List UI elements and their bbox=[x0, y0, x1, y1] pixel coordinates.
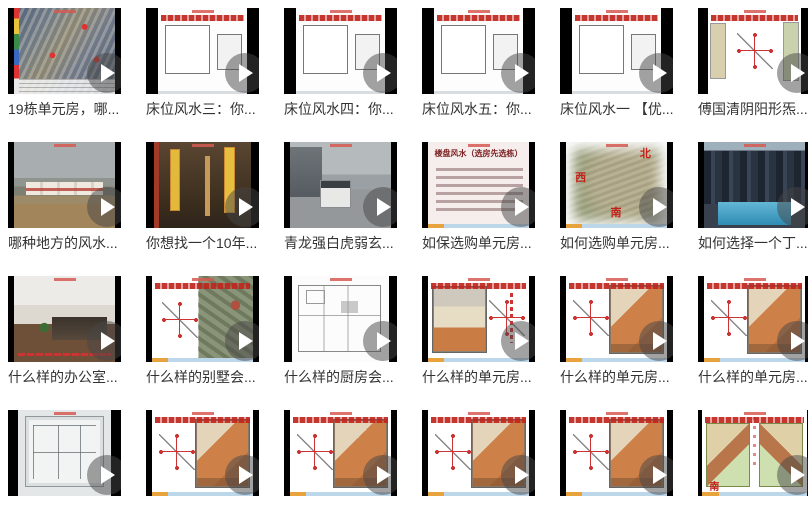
red-caption-strip bbox=[569, 283, 664, 289]
play-icon[interactable] bbox=[87, 187, 121, 227]
slide-headline: 楼盘风水（选房先选栋） bbox=[428, 148, 529, 159]
watermark-mark bbox=[192, 10, 214, 13]
watermark-mark bbox=[468, 144, 490, 147]
red-caption-strip bbox=[155, 283, 250, 289]
play-icon[interactable] bbox=[501, 455, 535, 495]
video-thumbnail[interactable] bbox=[284, 8, 397, 94]
video-thumbnail[interactable] bbox=[146, 142, 259, 228]
video-card[interactable]: 楼盘风水（选房先选栋） 如保选购单元房... bbox=[422, 142, 535, 252]
video-card[interactable]: 床位风水三：你... bbox=[146, 8, 259, 118]
watermark-mark bbox=[606, 144, 628, 147]
play-icon[interactable] bbox=[363, 321, 397, 361]
video-title[interactable]: 什么样的别墅会... bbox=[146, 368, 259, 386]
video-title[interactable]: 什么样的单元房... bbox=[698, 368, 808, 386]
video-card[interactable]: 床位风水五：你... bbox=[422, 8, 535, 118]
video-title[interactable]: 如何选择一个丁... bbox=[698, 234, 808, 252]
video-thumbnail[interactable] bbox=[284, 142, 397, 228]
video-thumbnail[interactable] bbox=[284, 410, 397, 496]
compass-icon bbox=[711, 300, 747, 336]
video-card[interactable] bbox=[146, 410, 259, 520]
video-title[interactable] bbox=[8, 502, 121, 520]
video-title[interactable]: 19栋单元房，哪... bbox=[8, 100, 121, 118]
video-thumbnail[interactable] bbox=[698, 276, 808, 362]
play-icon[interactable] bbox=[87, 455, 121, 495]
video-thumbnail[interactable] bbox=[8, 276, 121, 362]
compass-icon bbox=[435, 434, 471, 470]
watermark-mark bbox=[468, 10, 490, 13]
watermark-mark bbox=[744, 144, 766, 147]
play-icon[interactable] bbox=[225, 187, 259, 227]
video-card[interactable]: 如何选择一个丁... bbox=[698, 142, 808, 252]
video-thumbnail[interactable] bbox=[560, 8, 673, 94]
watermark-mark bbox=[192, 144, 214, 147]
video-title[interactable]: 如保选购单元房... bbox=[422, 234, 535, 252]
video-title[interactable]: 什么样的厨房会... bbox=[284, 368, 397, 386]
compass-icon bbox=[573, 434, 609, 470]
watermark-mark bbox=[330, 278, 352, 281]
watermark-mark bbox=[192, 278, 214, 281]
play-icon[interactable] bbox=[639, 187, 673, 227]
watermark-mark bbox=[54, 10, 76, 13]
watermark-mark bbox=[744, 278, 766, 281]
red-caption-strip bbox=[437, 15, 521, 21]
compass-label-north: 北 bbox=[640, 149, 651, 160]
video-title[interactable] bbox=[284, 502, 397, 520]
video-card[interactable] bbox=[8, 410, 121, 520]
video-thumbnail[interactable] bbox=[560, 410, 673, 496]
red-caption-strip bbox=[707, 283, 802, 289]
video-thumbnail[interactable] bbox=[8, 8, 121, 94]
video-card[interactable]: 什么样的别墅会... bbox=[146, 276, 259, 386]
video-card[interactable]: 傅国清阴阳形炁... bbox=[698, 8, 808, 118]
watermark-mark bbox=[54, 144, 76, 147]
watermark-mark bbox=[606, 278, 628, 281]
watermark-mark bbox=[606, 412, 628, 415]
video-thumbnail[interactable]: 南 bbox=[698, 410, 808, 496]
video-thumbnail[interactable] bbox=[560, 276, 673, 362]
watermark-mark bbox=[606, 10, 628, 13]
video-card[interactable]: 19栋单元房，哪... bbox=[8, 8, 121, 118]
video-title[interactable] bbox=[698, 502, 808, 520]
video-thumbnail[interactable] bbox=[146, 276, 259, 362]
video-card[interactable]: 北 西 南 如何选购单元房... bbox=[560, 142, 673, 252]
video-thumbnail[interactable]: 楼盘风水（选房先选栋） bbox=[422, 142, 535, 228]
video-title[interactable]: 哪种地方的风水... bbox=[8, 234, 121, 252]
red-caption-strip bbox=[711, 15, 798, 21]
play-icon[interactable] bbox=[225, 455, 259, 495]
watermark-mark bbox=[744, 412, 766, 415]
watermark-mark bbox=[330, 10, 352, 13]
compass-icon bbox=[297, 434, 333, 470]
compass-icon bbox=[159, 434, 195, 470]
video-title[interactable] bbox=[146, 502, 259, 520]
play-icon[interactable] bbox=[501, 53, 535, 93]
play-icon[interactable] bbox=[363, 187, 397, 227]
red-caption-strip bbox=[161, 15, 245, 21]
red-caption-strip bbox=[155, 417, 250, 423]
video-title[interactable]: 床位风水三：你... bbox=[146, 100, 259, 118]
video-card[interactable]: 你想找一个10年... bbox=[146, 142, 259, 252]
video-card[interactable]: 什么样的办公室... bbox=[8, 276, 121, 386]
video-card[interactable]: 青龙强白虎弱玄... bbox=[284, 142, 397, 252]
compass-label-south: 南 bbox=[610, 208, 621, 219]
video-title[interactable]: 什么样的办公室... bbox=[8, 368, 121, 386]
watermark-mark bbox=[744, 10, 766, 13]
video-title[interactable]: 如何选购单元房... bbox=[560, 234, 673, 252]
video-title[interactable]: 什么样的单元房... bbox=[422, 368, 535, 386]
red-caption-strip bbox=[299, 15, 383, 21]
video-card[interactable]: 哪种地方的风水... bbox=[8, 142, 121, 252]
play-icon[interactable] bbox=[87, 53, 121, 93]
compass-icon bbox=[737, 33, 773, 69]
video-card[interactable]: 什么样的单元房... bbox=[698, 276, 808, 386]
watermark-mark bbox=[330, 412, 352, 415]
red-caption-strip bbox=[293, 417, 388, 423]
watermark-mark bbox=[192, 412, 214, 415]
watermark-mark bbox=[468, 412, 490, 415]
play-icon[interactable] bbox=[639, 455, 673, 495]
video-card[interactable]: 什么样的厨房会... bbox=[284, 276, 397, 386]
video-card[interactable] bbox=[560, 410, 673, 520]
video-title[interactable]: 什么样的单元房... bbox=[560, 368, 673, 386]
red-caption-strip bbox=[431, 417, 526, 423]
play-icon[interactable] bbox=[87, 321, 121, 361]
video-thumbnail[interactable] bbox=[8, 410, 121, 496]
video-card[interactable]: 什么样的单元房... bbox=[422, 276, 535, 386]
video-thumbnail[interactable] bbox=[422, 276, 535, 362]
video-card[interactable]: 床位风水四：你... bbox=[284, 8, 397, 118]
video-title[interactable]: 床位风水四：你... bbox=[284, 100, 397, 118]
red-caption-strip bbox=[705, 417, 804, 423]
red-caption-strip bbox=[575, 15, 659, 21]
video-thumbnail[interactable] bbox=[422, 8, 535, 94]
video-card[interactable] bbox=[284, 410, 397, 520]
compass-label-south: 南 bbox=[709, 483, 719, 493]
video-thumbnail[interactable] bbox=[698, 8, 808, 94]
video-thumbnail[interactable]: 北 西 南 bbox=[560, 142, 673, 228]
video-card[interactable]: 南 bbox=[698, 410, 808, 520]
red-caption-strip bbox=[431, 283, 526, 289]
video-title[interactable]: 青龙强白虎弱玄... bbox=[284, 234, 397, 252]
video-thumbnail[interactable] bbox=[146, 8, 259, 94]
watermark-mark bbox=[54, 412, 76, 415]
video-thumbnail[interactable] bbox=[146, 410, 259, 496]
play-icon[interactable] bbox=[501, 187, 535, 227]
play-icon[interactable] bbox=[639, 321, 673, 361]
video-thumbnail[interactable] bbox=[698, 142, 808, 228]
play-icon[interactable] bbox=[363, 455, 397, 495]
compass-icon bbox=[573, 300, 609, 336]
video-title[interactable] bbox=[422, 502, 535, 520]
watermark-mark bbox=[330, 144, 352, 147]
video-grid: 19栋单元房，哪... 床位风水三：你... 床位风水四：你... 床位风水五：… bbox=[8, 8, 808, 520]
play-icon[interactable] bbox=[225, 321, 259, 361]
video-card[interactable]: 床位风水一 【优... bbox=[560, 8, 673, 118]
play-icon[interactable] bbox=[225, 53, 259, 93]
watermark-mark bbox=[54, 278, 76, 281]
video-thumbnail[interactable] bbox=[8, 142, 121, 228]
video-card[interactable]: 什么样的单元房... bbox=[560, 276, 673, 386]
video-card[interactable] bbox=[422, 410, 535, 520]
video-title[interactable]: 傅国清阴阳形炁... bbox=[698, 100, 808, 118]
play-icon[interactable] bbox=[363, 53, 397, 93]
video-title[interactable]: 床位风水五：你... bbox=[422, 100, 535, 118]
compass-icon bbox=[162, 302, 198, 338]
red-caption-strip bbox=[569, 417, 664, 423]
video-title[interactable]: 你想找一个10年... bbox=[146, 234, 259, 252]
compass-label-west: 西 bbox=[575, 173, 586, 184]
video-thumbnail[interactable] bbox=[422, 410, 535, 496]
video-title[interactable]: 床位风水一 【优... bbox=[560, 100, 673, 118]
video-thumbnail[interactable] bbox=[284, 276, 397, 362]
play-icon[interactable] bbox=[501, 321, 535, 361]
video-title[interactable] bbox=[560, 502, 673, 520]
play-icon[interactable] bbox=[639, 53, 673, 93]
watermark-mark bbox=[468, 278, 490, 281]
